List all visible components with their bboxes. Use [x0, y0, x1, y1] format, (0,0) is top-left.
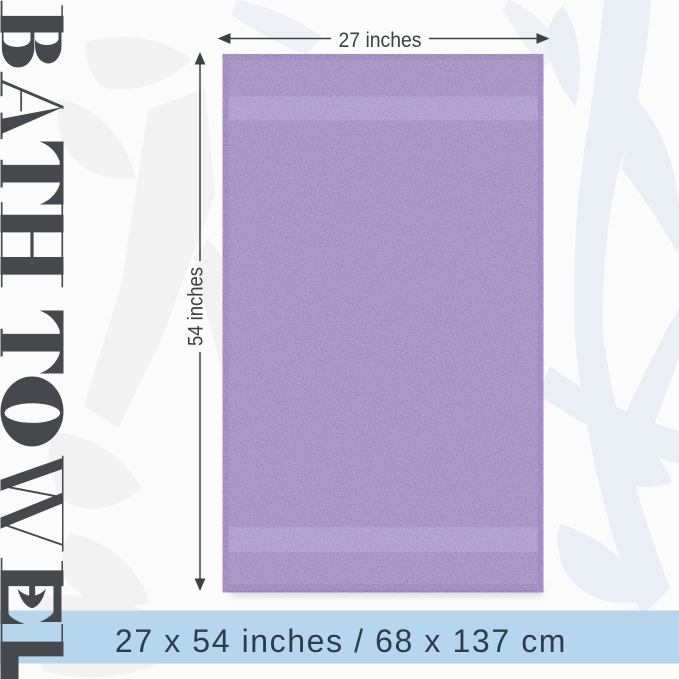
- svg-text:27 x 54 inches / 68 x 137 cm: 27 x 54 inches / 68 x 137 cm: [115, 623, 567, 659]
- svg-text:27 inches: 27 inches: [339, 28, 422, 52]
- svg-text:54 inches: 54 inches: [184, 267, 208, 346]
